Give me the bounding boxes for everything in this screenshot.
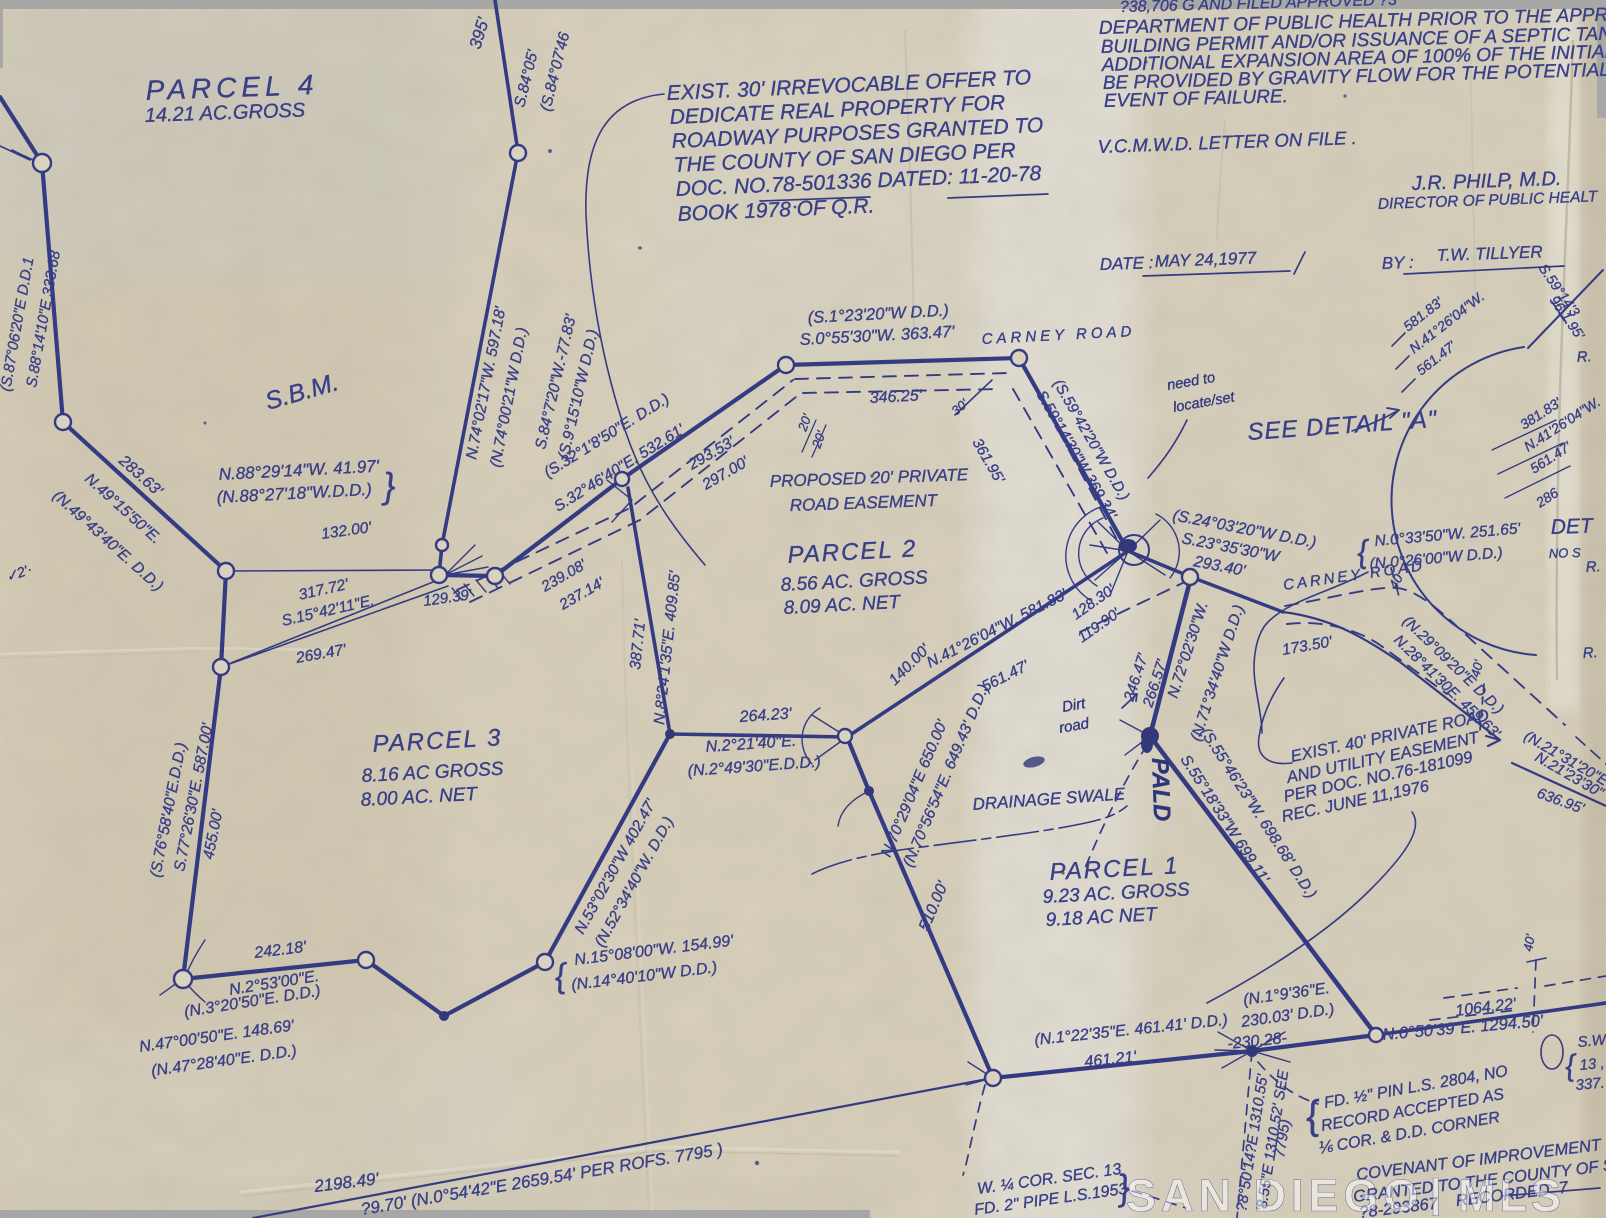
svg-text:S.W.: S.W.: [1577, 1031, 1606, 1051]
svg-text:346.25': 346.25': [869, 387, 923, 407]
svg-text:DET: DET: [1550, 514, 1595, 539]
svg-text:MLS: MLS: [1458, 1170, 1565, 1218]
svg-text:BY :: BY :: [1381, 253, 1414, 273]
svg-text:DATE :: DATE :: [1099, 253, 1153, 274]
svg-text:SAN DIEGO: SAN DIEGO: [1126, 1170, 1424, 1218]
svg-text:|: |: [1430, 1172, 1441, 1216]
svg-text:MAY 24,1977: MAY 24,1977: [1154, 248, 1257, 271]
svg-text:13 ,: 13 ,: [1579, 1055, 1605, 1074]
svg-text:R.: R.: [1576, 348, 1592, 366]
svg-text:T.W. TILLYER: T.W. TILLYER: [1436, 242, 1542, 265]
svg-text:R.: R.: [1585, 558, 1601, 576]
svg-text:40': 40': [1520, 933, 1538, 953]
svg-text:R.: R.: [1582, 644, 1598, 662]
svg-text:NO S: NO S: [1549, 545, 1582, 561]
svg-text:PALD: PALD: [1146, 757, 1175, 821]
svg-text:337.: 337.: [1575, 1075, 1606, 1094]
